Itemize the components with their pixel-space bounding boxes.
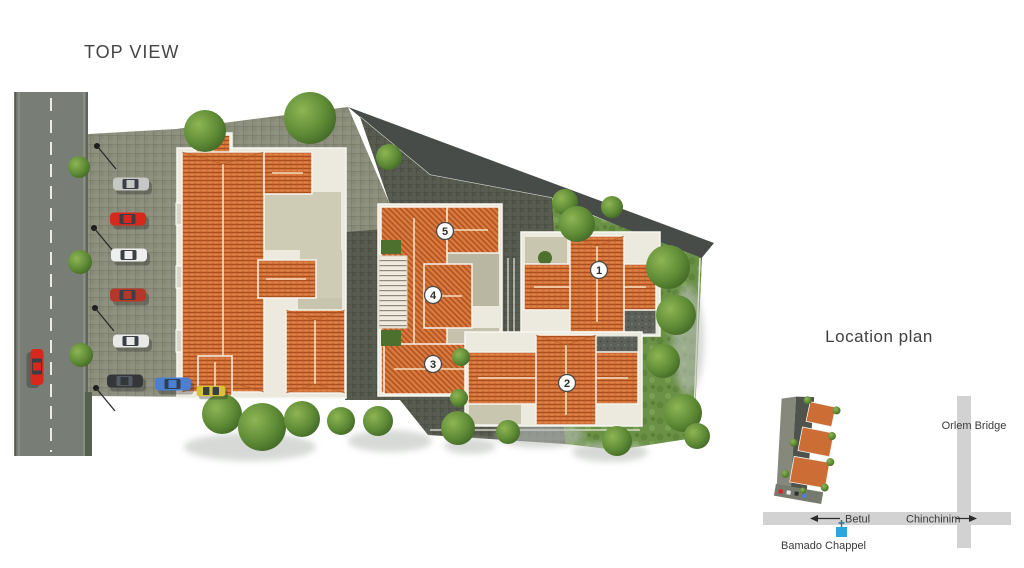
bush-icon: [450, 389, 468, 407]
location-plan-map: Betul Chinchinim Orlem Bridge Bamado Cha…: [763, 393, 1011, 552]
chapel-label: Bamado Chappel: [781, 540, 866, 552]
tree-icon: [202, 394, 242, 434]
car-icon: [110, 213, 149, 230]
location-plan-title: Location plan: [825, 327, 933, 346]
car-icon: [27, 349, 44, 388]
tree-icon: [559, 206, 595, 242]
tree-icon: [68, 250, 92, 274]
van-icon: [197, 386, 228, 400]
tree-icon: [684, 423, 710, 449]
tree-icon: [363, 406, 393, 436]
hedge-strip: [85, 392, 92, 456]
tree-icon: [69, 343, 93, 367]
planter: [381, 330, 401, 346]
svg-text:Chinchinim: Chinchinim: [906, 514, 960, 526]
building-marker-3: 3: [425, 356, 442, 373]
bush-icon: [452, 348, 470, 366]
tree-icon: [441, 411, 475, 445]
tree-icon: [602, 426, 632, 456]
tree-icon: [238, 403, 286, 451]
svg-text:2: 2: [564, 378, 570, 390]
svg-text:5: 5: [442, 226, 448, 238]
pergola: [379, 256, 407, 328]
tree-icon: [68, 156, 90, 178]
street-road: [14, 92, 92, 456]
building-marker-2: 2: [559, 375, 576, 392]
tree-icon: [376, 144, 402, 170]
svg-text:Betul: Betul: [845, 514, 870, 526]
tree-icon: [496, 420, 520, 444]
car-icon: [110, 289, 149, 306]
top-view-title: TOP VIEW: [84, 42, 179, 62]
tree-icon: [646, 344, 680, 378]
car-icon: [113, 178, 152, 195]
chapel-icon: [836, 527, 847, 537]
car-icon: [111, 249, 150, 266]
building-marker-4: 4: [425, 287, 442, 304]
svg-text:4: 4: [430, 290, 437, 302]
site-plan-page: 1 2 3 4 5 TOP VIEW Location plan: [0, 0, 1024, 568]
main-building: [176, 133, 346, 398]
car-icon: [113, 335, 152, 352]
tree-icon: [184, 110, 226, 152]
building-marker-5: 5: [437, 223, 454, 240]
tree-icon: [327, 407, 355, 435]
tree-icon: [284, 401, 320, 437]
site-plan-illustration: 1 2 3 4 5 TOP VIEW Location plan: [0, 0, 1024, 568]
tree-icon: [656, 295, 696, 335]
location-site-thumbnail: [768, 393, 843, 505]
building-marker-1: 1: [591, 262, 608, 279]
tree-icon: [601, 196, 623, 218]
road-label-orlem-bridge: Orlem Bridge: [942, 420, 1007, 432]
tree-icon: [646, 245, 690, 289]
car-icon: [155, 378, 194, 395]
car-icon: [107, 375, 146, 392]
villa-2: [465, 332, 642, 426]
planter: [381, 240, 401, 254]
svg-text:1: 1: [596, 265, 602, 277]
tree-icon: [284, 92, 336, 144]
villa-1: [521, 232, 660, 336]
svg-text:3: 3: [430, 359, 436, 371]
